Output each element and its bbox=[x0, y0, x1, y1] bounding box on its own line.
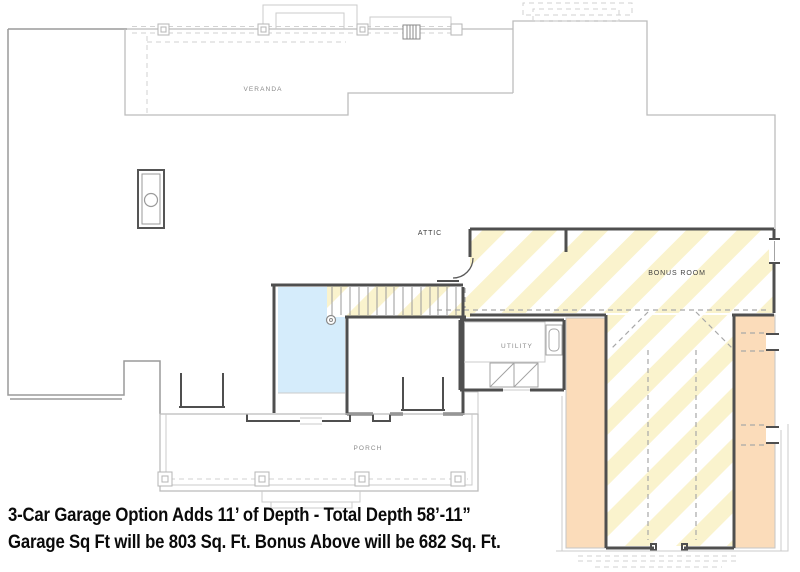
window-bay-right bbox=[401, 377, 445, 410]
porch-posts bbox=[158, 472, 465, 486]
window-bay-left bbox=[179, 373, 225, 407]
garage-wall-left bbox=[566, 318, 606, 548]
garage-window-upper bbox=[766, 334, 779, 350]
utility-label: UTILITY bbox=[501, 343, 533, 350]
veranda-label: VERANDA bbox=[243, 86, 282, 93]
attic-storage-hatch bbox=[327, 285, 472, 317]
caption-line-2: Garage Sq Ft will be 803 Sq. Ft. Bonus A… bbox=[8, 529, 501, 556]
center-bay-walls bbox=[247, 414, 350, 421]
upper-roof-outline bbox=[127, 21, 775, 229]
floor-plan-drawing: VERANDA ATTIC BONUS ROOM UTILITY PORCH bbox=[0, 0, 800, 572]
bonus-over-garage-hatch bbox=[606, 315, 734, 546]
utility-counter bbox=[464, 322, 545, 362]
porch-label: PORCH bbox=[354, 445, 383, 452]
utility-fixtures bbox=[464, 322, 562, 390]
ridge-vent-dashes bbox=[523, 3, 632, 21]
garage-window-lower bbox=[766, 427, 779, 443]
porch-right-connector bbox=[465, 392, 478, 414]
entry-wall-jog bbox=[373, 414, 390, 421]
caption-line-1: 3-Car Garage Option Adds 11’ of Depth - … bbox=[8, 502, 501, 529]
floor-plan-page: VERANDA ATTIC BONUS ROOM UTILITY PORCH 3… bbox=[0, 0, 800, 572]
chimney bbox=[138, 170, 164, 228]
bonus-room-label: BONUS ROOM bbox=[648, 270, 706, 277]
room-below-stairs-walls bbox=[347, 317, 463, 415]
bonus-room-hatch bbox=[470, 229, 774, 313]
roof-chimney-vent bbox=[403, 25, 420, 39]
option-caption: 3-Car Garage Option Adds 11’ of Depth - … bbox=[8, 502, 501, 556]
attic-label: ATTIC bbox=[418, 230, 442, 237]
handrail-curl bbox=[327, 316, 336, 325]
